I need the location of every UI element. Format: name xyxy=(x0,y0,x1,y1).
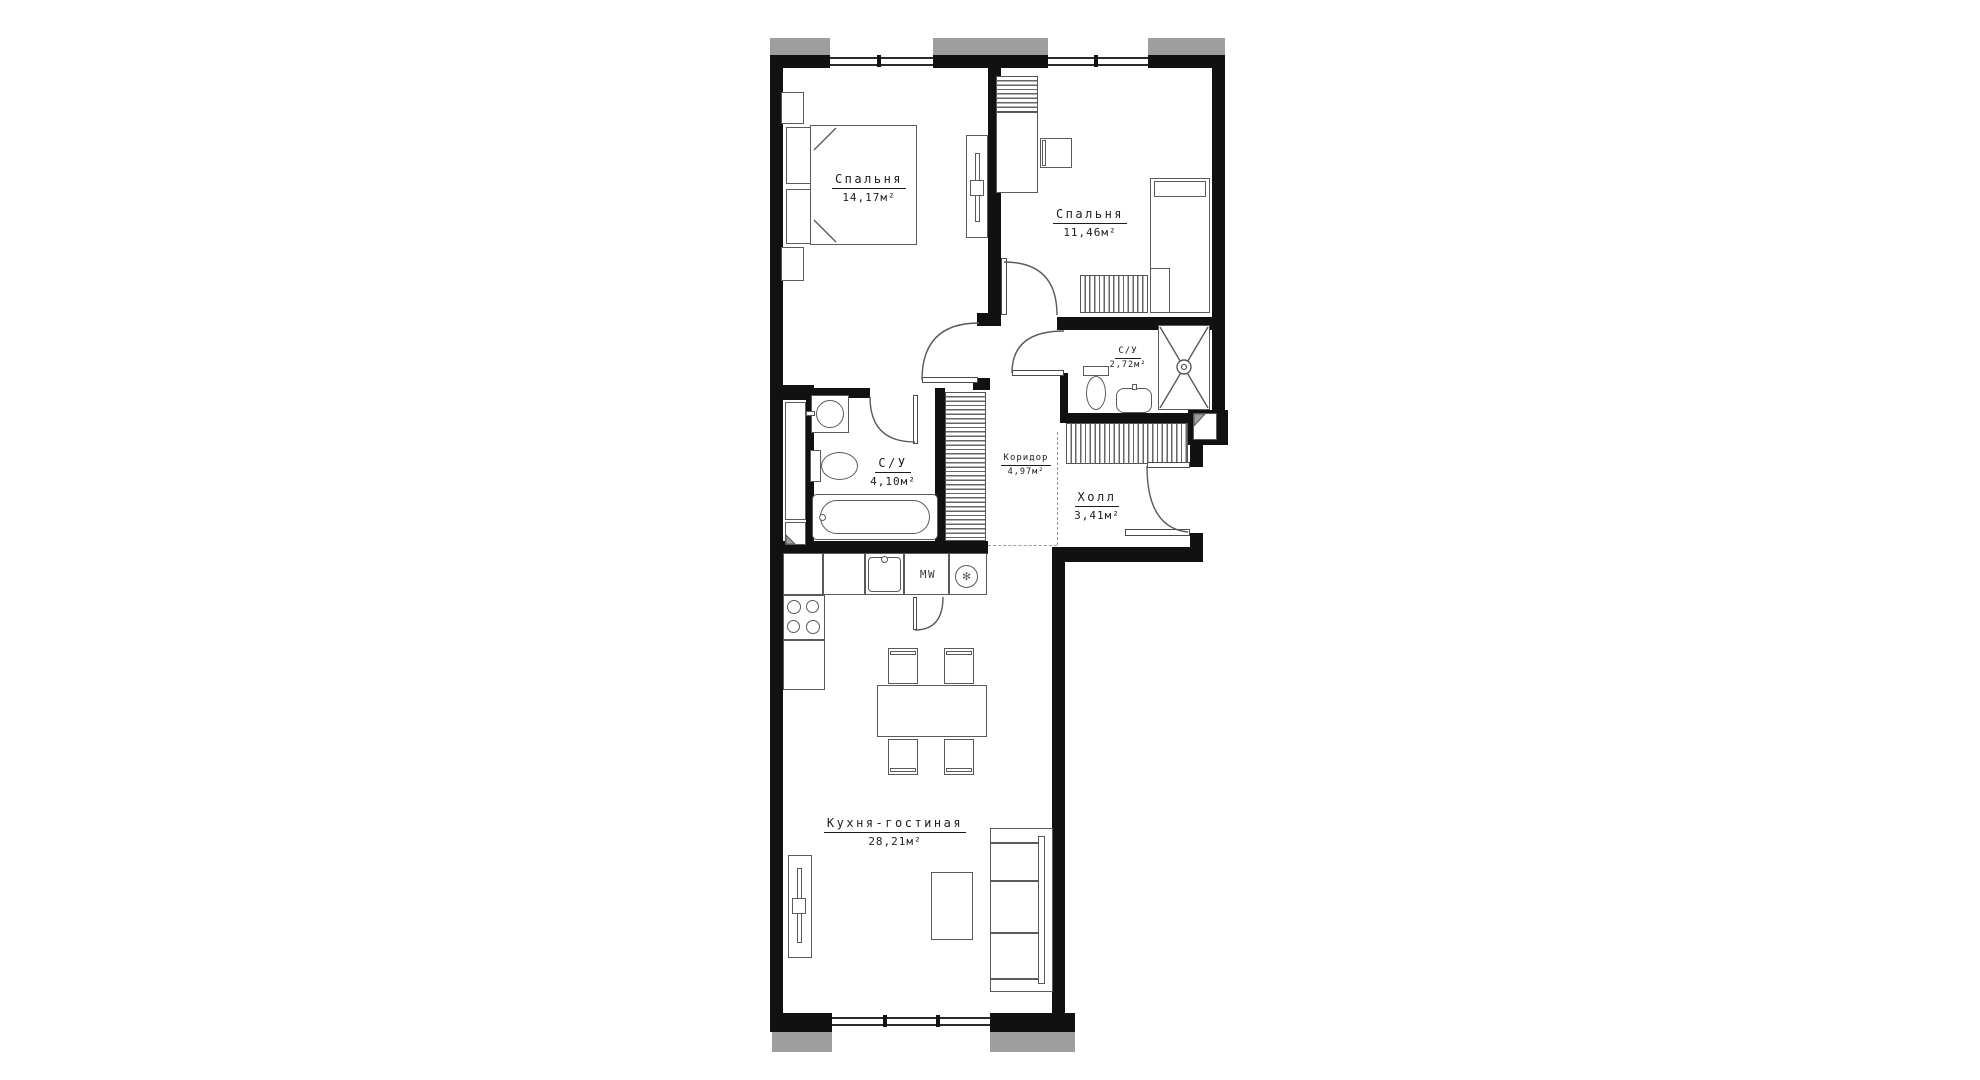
burner-3 xyxy=(787,620,800,633)
dining-chair-1-back xyxy=(890,651,916,655)
sofa-seam-1 xyxy=(991,880,1038,882)
dining-chair-3-back xyxy=(890,768,916,772)
window-mullion-2 xyxy=(1094,55,1098,67)
burner-1 xyxy=(787,600,801,614)
washbasin-small-bath xyxy=(1116,388,1152,413)
door-leaf-kitchen-cabinet xyxy=(913,597,917,630)
sofa-seam-2 xyxy=(991,932,1038,934)
dining-chair-2-back xyxy=(946,651,972,655)
label-bathroom-big-area: 4,10м² xyxy=(843,475,943,488)
door-arc-bath-big xyxy=(870,397,915,442)
label-bedroom2-area: 11,46м² xyxy=(1030,226,1150,239)
wall-left xyxy=(770,55,783,1032)
window-mullion-3 xyxy=(883,1015,887,1027)
washbasin-tap-big-bath xyxy=(806,411,815,416)
dining-chair-4-back xyxy=(946,768,972,772)
dashed-line-corridor-kitchen xyxy=(988,545,1057,546)
door-arc-entrance xyxy=(1147,466,1188,532)
kitchen-sink-tap xyxy=(881,556,888,563)
bathtub-inner xyxy=(820,500,930,534)
label-corridor: Коридор 4,97м² xyxy=(976,445,1076,477)
washbasin-round-big-bath xyxy=(816,400,844,428)
tv-mount-bedroom1 xyxy=(970,180,984,196)
tv-mount-living xyxy=(792,898,806,914)
shaft-symbol-left xyxy=(785,522,806,545)
wall-bottom-1 xyxy=(770,1013,832,1032)
label-kitchen-living-name: Кухня-гостиная xyxy=(824,816,966,833)
wall-kitchen-right xyxy=(1052,562,1065,1013)
label-bathroom-small: С/У 2,72м² xyxy=(1078,338,1178,370)
window-living xyxy=(832,1017,990,1026)
shaft-symbol-right xyxy=(1193,413,1217,440)
desk-chair xyxy=(1040,138,1072,168)
bedside-bench xyxy=(1150,268,1170,313)
door-leaf-bedroom1 xyxy=(922,377,978,383)
microwave-label: MW xyxy=(908,568,948,581)
wall-right-mid xyxy=(1190,443,1203,467)
toilet-bowl-small-bath xyxy=(1086,376,1106,410)
label-corridor-area: 4,97м² xyxy=(976,467,1076,477)
label-bedroom1-area: 14,17м² xyxy=(809,191,929,204)
dining-chair-1 xyxy=(888,648,918,684)
floor-plan-canvas: MW ✻ xyxy=(0,0,1980,1080)
door-arc-bath-small xyxy=(1012,331,1064,373)
desk xyxy=(996,112,1038,193)
single-bed-pillow xyxy=(1154,181,1206,197)
door-leaf-bath-small xyxy=(1012,370,1064,376)
window-bedroom2 xyxy=(1048,57,1148,66)
label-bathroom-small-name: С/У xyxy=(1115,346,1140,359)
nightstand-top xyxy=(781,92,804,124)
counter-divider-3 xyxy=(903,553,905,595)
duct-shaft-left xyxy=(785,402,806,520)
counter-divider-4 xyxy=(948,553,950,595)
label-bedroom2: Спальня 11,46м² xyxy=(1030,203,1150,239)
exterior-strip-top-right xyxy=(1148,38,1225,55)
door-arc-bedroom1 xyxy=(922,323,979,380)
label-hall-name: Холл xyxy=(1075,490,1120,507)
dining-chair-2 xyxy=(944,648,974,684)
sofa-backrest xyxy=(1038,836,1045,984)
burner-2 xyxy=(806,600,819,613)
burner-4 xyxy=(806,620,820,634)
wall-hall-bottom xyxy=(1052,547,1203,562)
wardrobe-hall xyxy=(1066,423,1188,464)
label-bathroom-big: С/У 4,10м² xyxy=(843,452,943,488)
counter-divider-1 xyxy=(822,553,824,595)
exterior-strip-top-left xyxy=(770,38,830,55)
door-arc-bedroom2 xyxy=(1004,262,1057,315)
window-mullion-1 xyxy=(877,55,881,67)
exterior-strip-bottom-right xyxy=(990,1032,1075,1052)
label-bedroom2-name: Спальня xyxy=(1053,207,1127,224)
wall-bottom-2 xyxy=(990,1013,1075,1032)
dining-table xyxy=(877,685,987,737)
label-bedroom1-name: Спальня xyxy=(832,172,906,189)
entrance-threshold xyxy=(1125,529,1190,536)
dining-chair-3 xyxy=(888,739,918,775)
label-bathroom-small-area: 2,72м² xyxy=(1078,360,1178,370)
wall-right-upper xyxy=(1212,55,1225,410)
desk-chair-backrest xyxy=(1042,140,1046,166)
kitchen-cabinet-low xyxy=(783,640,825,690)
exterior-strip-top-middle xyxy=(933,38,1048,55)
door-arc-kitchen-cabinet xyxy=(915,597,943,630)
shelf-bedroom2 xyxy=(996,76,1038,112)
window-mullion-4 xyxy=(936,1015,940,1027)
sofa-armrest-bottom xyxy=(991,978,1038,980)
door-leaf-bath-big xyxy=(913,395,918,444)
wall-top-2 xyxy=(933,55,1048,68)
wall-bath-small-bottom xyxy=(1060,413,1195,423)
label-hall: Холл 3,41м² xyxy=(1047,486,1147,522)
label-kitchen-living-area: 28,21м² xyxy=(795,835,995,848)
dining-chair-4 xyxy=(944,739,974,775)
label-hall-area: 3,41м² xyxy=(1047,509,1147,522)
door-leaf-bedroom2 xyxy=(1001,258,1007,315)
coffee-table xyxy=(931,872,973,940)
sofa-armrest-top xyxy=(991,842,1038,844)
door-leaf-entrance xyxy=(1147,462,1190,468)
label-kitchen-living: Кухня-гостиная 28,21м² xyxy=(795,812,995,848)
toilet-tank-big-bath xyxy=(810,450,821,482)
nightstand-bottom xyxy=(781,247,804,281)
cooker-hood-icon: ✻ xyxy=(955,565,978,588)
washbasin-tap-small-bath xyxy=(1132,384,1137,390)
bathtub-tap xyxy=(819,514,826,521)
wall-bedroom1-stub-top xyxy=(977,313,1001,326)
label-corridor-name: Коридор xyxy=(1001,453,1052,466)
wardrobe-bedroom2 xyxy=(1080,275,1148,313)
counter-divider-2 xyxy=(864,553,866,595)
window-bedroom1 xyxy=(830,57,933,66)
exterior-strip-bottom-left xyxy=(772,1032,832,1052)
label-bedroom1: Спальня 14,17м² xyxy=(809,168,929,204)
label-bathroom-big-name: С/У xyxy=(875,456,910,473)
